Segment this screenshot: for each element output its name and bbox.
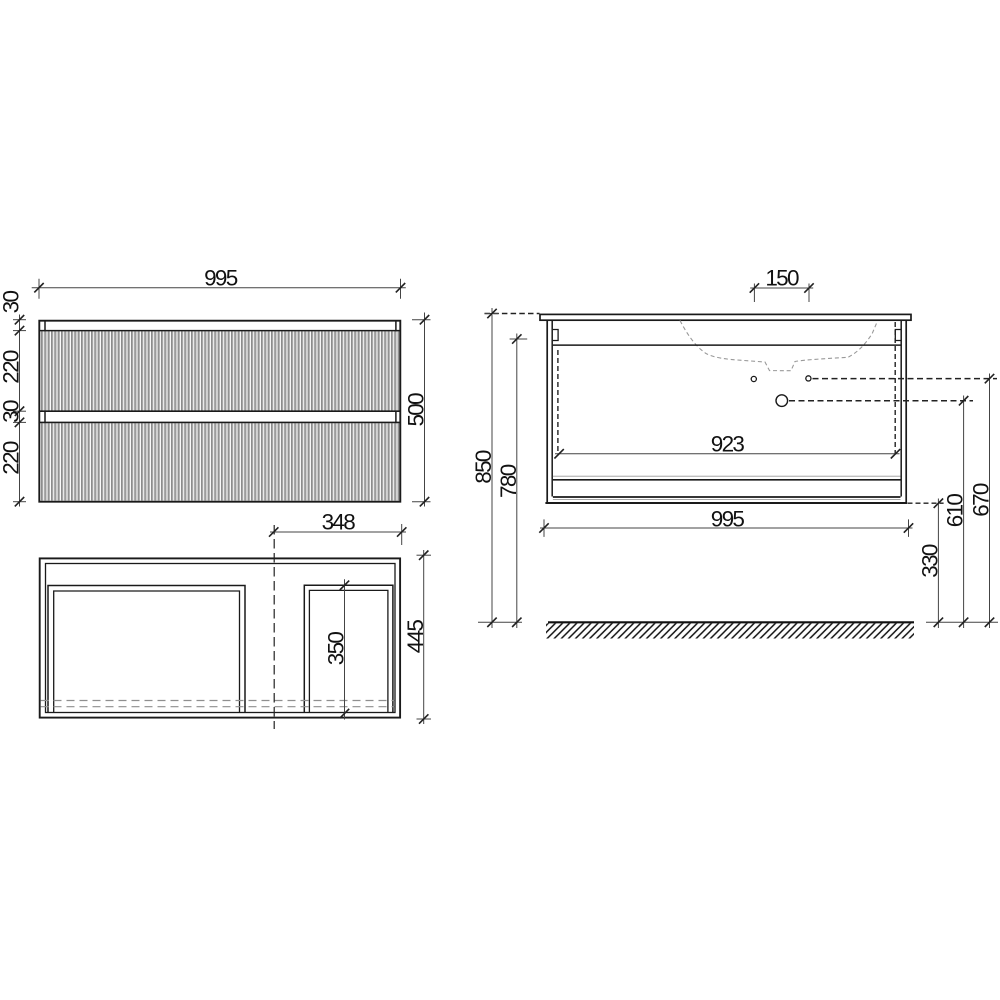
svg-text:670: 670 [969,483,994,517]
svg-text:780: 780 [496,464,521,498]
svg-text:923: 923 [711,431,745,456]
svg-text:330: 330 [917,544,942,578]
svg-text:348: 348 [322,509,356,534]
svg-text:850: 850 [471,450,496,484]
svg-text:220: 220 [0,350,24,384]
svg-text:30: 30 [0,400,24,423]
svg-text:995: 995 [711,506,745,531]
svg-text:445: 445 [403,620,428,654]
svg-text:350: 350 [324,632,349,666]
svg-text:610: 610 [943,494,968,528]
svg-text:995: 995 [204,265,238,290]
svg-text:150: 150 [765,265,799,290]
svg-text:500: 500 [404,393,429,427]
svg-text:30: 30 [0,291,24,314]
svg-text:220: 220 [0,441,24,475]
